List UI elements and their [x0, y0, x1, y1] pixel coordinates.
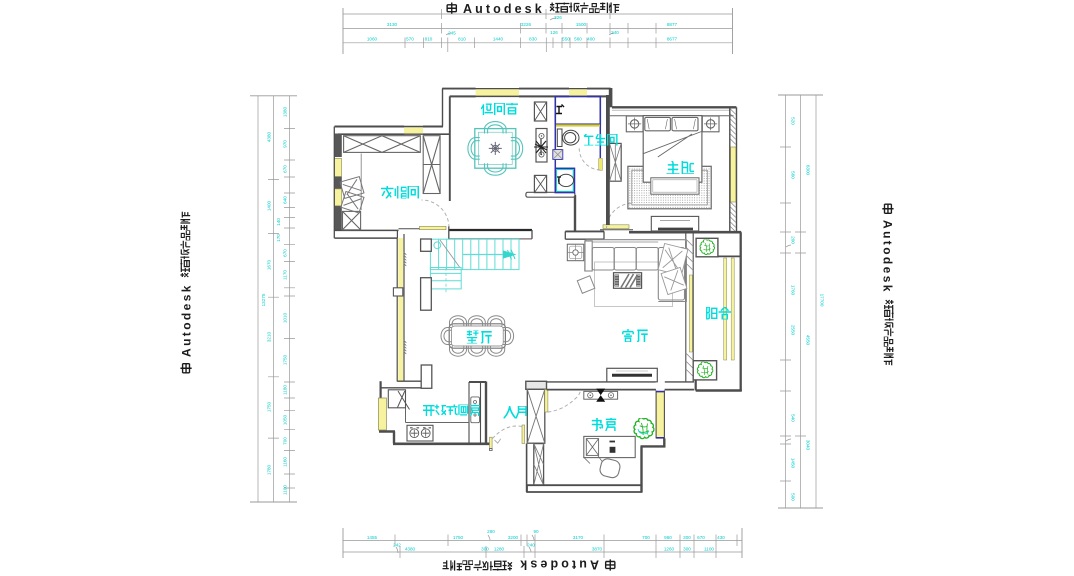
- svg-text:1750: 1750: [283, 354, 288, 365]
- svg-text:1280: 1280: [494, 547, 505, 552]
- svg-text:1050: 1050: [283, 414, 288, 425]
- svg-text:830: 830: [529, 36, 537, 41]
- svg-text:1170: 1170: [283, 270, 288, 280]
- svg-text:1100: 1100: [283, 485, 288, 495]
- svg-text:326: 326: [554, 15, 562, 20]
- svg-text:3170: 3170: [573, 535, 584, 540]
- svg-text:670: 670: [283, 249, 288, 257]
- svg-text:300: 300: [481, 547, 489, 552]
- svg-text:3130: 3130: [387, 22, 398, 27]
- svg-text:3210: 3210: [267, 331, 272, 342]
- svg-text:2550: 2550: [791, 325, 796, 336]
- svg-text:240: 240: [527, 543, 535, 548]
- svg-text:500: 500: [791, 493, 796, 501]
- svg-text:560: 560: [574, 36, 582, 41]
- svg-text:1100: 1100: [704, 547, 714, 552]
- svg-text:280: 280: [487, 529, 495, 534]
- svg-text:300: 300: [683, 547, 691, 552]
- svg-text:570: 570: [406, 36, 414, 41]
- svg-text:6300: 6300: [806, 165, 811, 176]
- svg-text:1450: 1450: [791, 458, 796, 469]
- svg-text:4550: 4550: [806, 335, 811, 346]
- svg-text:200: 200: [791, 236, 796, 244]
- svg-text:1760: 1760: [791, 285, 796, 296]
- svg-text:1440: 1440: [493, 36, 504, 41]
- svg-text:8677: 8677: [667, 36, 678, 41]
- svg-text:810: 810: [458, 36, 466, 41]
- svg-text:8877: 8877: [667, 22, 678, 27]
- svg-text:3870: 3870: [592, 547, 603, 552]
- svg-text:670: 670: [697, 535, 705, 540]
- svg-text:126: 126: [550, 30, 558, 35]
- svg-text:1500: 1500: [576, 22, 587, 27]
- svg-text:430: 430: [717, 535, 725, 540]
- svg-text:4380: 4380: [405, 547, 416, 552]
- svg-text:520: 520: [791, 117, 796, 125]
- svg-text:1455: 1455: [367, 535, 378, 540]
- svg-text:240: 240: [611, 30, 619, 35]
- svg-text:960: 960: [664, 535, 672, 540]
- svg-text:3200: 3200: [508, 535, 519, 540]
- svg-text:1670: 1670: [267, 259, 272, 270]
- svg-text:640: 640: [283, 196, 288, 204]
- svg-text:1780: 1780: [267, 464, 272, 475]
- svg-text:3226: 3226: [521, 22, 532, 27]
- svg-text:400: 400: [587, 36, 595, 41]
- svg-text:1380: 1380: [283, 106, 288, 117]
- svg-text:Autodesk: Autodesk: [517, 557, 599, 571]
- svg-text:300: 300: [683, 535, 691, 540]
- svg-text:1750: 1750: [453, 535, 464, 540]
- svg-text:140: 140: [276, 218, 281, 226]
- svg-text:Autodesk: Autodesk: [880, 220, 894, 294]
- svg-text:3040: 3040: [806, 440, 811, 451]
- svg-text:4380: 4380: [267, 131, 272, 142]
- svg-text:90: 90: [533, 529, 539, 534]
- svg-text:1060: 1060: [367, 36, 378, 41]
- svg-text:13275: 13275: [261, 293, 266, 306]
- svg-text:810: 810: [425, 36, 433, 41]
- svg-text:670: 670: [283, 165, 288, 173]
- svg-text:170: 170: [276, 234, 281, 242]
- svg-text:1750: 1750: [267, 401, 272, 412]
- svg-text:700: 700: [642, 535, 650, 540]
- svg-text:17700: 17700: [820, 294, 825, 307]
- svg-text:1400: 1400: [267, 200, 272, 211]
- svg-text:1180: 1180: [283, 385, 288, 395]
- svg-text:970: 970: [283, 140, 288, 148]
- svg-text:Autodesk: Autodesk: [180, 283, 194, 357]
- svg-text:540: 540: [791, 414, 796, 422]
- svg-text:1010: 1010: [283, 312, 288, 323]
- svg-text:700: 700: [283, 437, 288, 445]
- svg-text:1260: 1260: [664, 547, 675, 552]
- svg-text:245: 245: [448, 31, 456, 36]
- svg-text:242: 242: [393, 543, 401, 548]
- svg-text:1160: 1160: [283, 457, 288, 467]
- svg-text:550: 550: [562, 36, 570, 41]
- svg-text:560: 560: [791, 171, 796, 179]
